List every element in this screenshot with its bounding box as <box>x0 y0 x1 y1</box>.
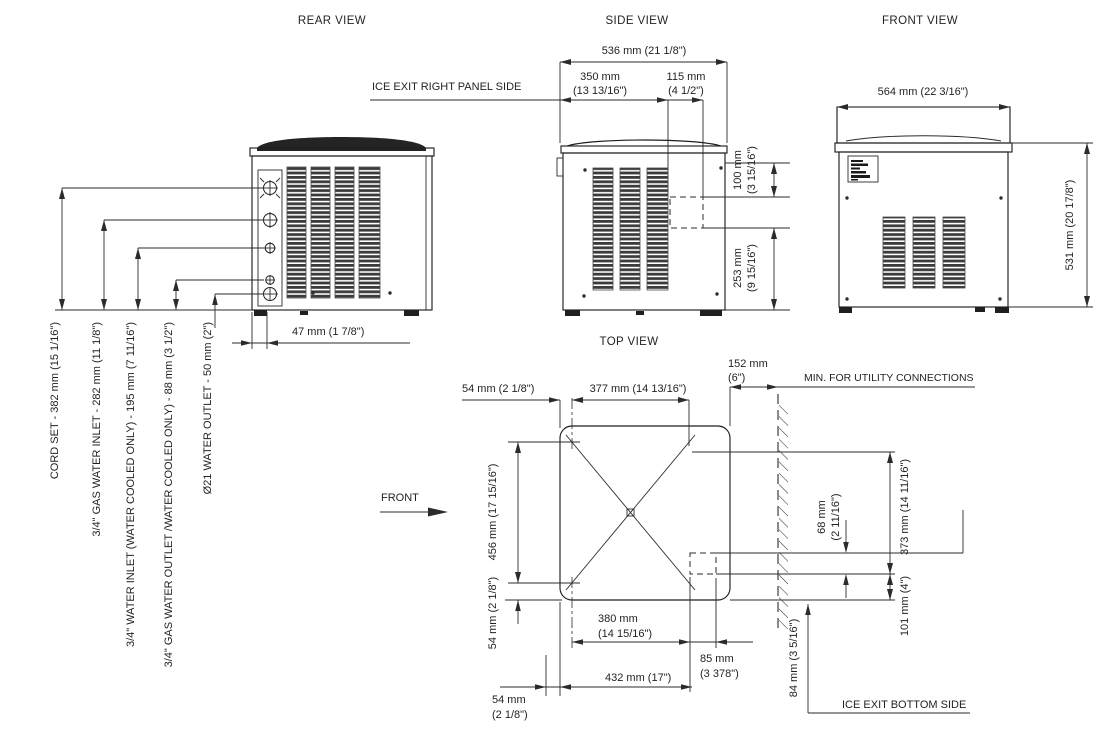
dim-350-label-l1: 350 mm <box>580 71 620 83</box>
dim-54-top-label: 54 mm (2 1/8") <box>462 383 534 395</box>
dim-377-label: 377 mm (14 13/16") <box>590 383 687 395</box>
dim-536-label: 536 mm (21 1/8") <box>602 45 687 57</box>
dim-101-label: 101 mm (4") <box>899 576 911 636</box>
rear-vent-grille <box>335 167 354 298</box>
front-machine <box>835 107 1012 313</box>
gas-water-outlet-fitting <box>265 275 275 285</box>
screw <box>311 291 314 294</box>
dim-350-label-l2: (13 13/16") <box>573 85 627 97</box>
foot <box>300 311 308 315</box>
foot <box>404 310 419 316</box>
front-lid-arc <box>846 136 1001 141</box>
foot <box>975 307 985 312</box>
dim-68-label-l2: (2 11/16") <box>830 493 842 540</box>
water-outlet-label: Ø21 WATER OUTLET - 50 mm (2") <box>202 322 214 494</box>
top-view-title: TOP VIEW <box>599 336 658 348</box>
dim-84-label: 84 mm (3 5/16") <box>788 619 800 698</box>
front-view: FRONT VIEW 564 mm (22 3/16") <box>835 15 1093 313</box>
foot <box>839 307 852 313</box>
screw <box>582 294 585 297</box>
spec-label <box>848 156 878 182</box>
front-lid <box>837 107 1010 143</box>
dim-68-label-l1: 68 mm <box>816 500 828 534</box>
dim-152-label-l2: (6") <box>728 372 745 384</box>
dim-100-label-l1: 100 mm <box>732 150 744 190</box>
dim-54-left-label: 54 mm (2 1/8") <box>487 577 499 649</box>
front-direction-label: FRONT <box>381 492 419 504</box>
top-ice-exit-opening <box>690 553 716 574</box>
utility-wall <box>778 394 788 632</box>
dim-531-label: 531 mm (20 17/8") <box>1064 180 1076 271</box>
screw <box>998 297 1001 300</box>
rear-machine <box>250 137 434 316</box>
dim-115-label-l1: 115 mm <box>667 71 706 83</box>
side-view-title: SIDE VIEW <box>605 15 668 27</box>
side-hinge <box>557 158 563 176</box>
dim-100-label-l2: (3 15/16") <box>746 146 758 194</box>
front-vent-grille <box>913 217 935 288</box>
cord-set-label: CORD SET - 382 mm (15 1/16") <box>49 322 61 479</box>
dim-373-label: 373 mm (14 11/16") <box>899 459 911 555</box>
side-body <box>563 153 725 310</box>
foot <box>565 310 580 316</box>
rear-view-title: REAR VIEW <box>298 15 366 27</box>
screw <box>719 166 722 169</box>
dim-253-label-l2: (9 15/16") <box>746 244 758 292</box>
dim-115-label-l2: (4 1/2") <box>668 85 704 97</box>
screw <box>845 196 848 199</box>
front-direction-arrow <box>380 508 448 517</box>
dim-380-label-l2: (14 15/16") <box>598 628 652 640</box>
top-left-dimension-lines <box>505 442 580 624</box>
foot <box>254 310 267 316</box>
foot <box>995 307 1009 313</box>
water-inlet-label: 3/4" WATER INLET (WATER COOLED ONLY) - 1… <box>125 322 137 647</box>
dim-54-bottom-label-l2: (2 1/8") <box>492 709 528 721</box>
ice-exit-right-panel-label: ICE EXIT RIGHT PANEL SIDE <box>372 81 521 93</box>
rear-view: REAR VIEW <box>49 15 434 667</box>
screw <box>845 297 848 300</box>
side-view: SIDE VIEW 536 mm (21 1/8") ICE EXIT RIGH… <box>370 15 790 316</box>
side-vent-grille <box>620 168 640 290</box>
gas-water-outlet-label: 3/4" GAS WATER OUTLET /WATER COOLED ONLY… <box>163 322 175 667</box>
dim-85-label-l1: 85 mm <box>700 653 734 665</box>
dim-253-label-l1: 253 mm <box>732 248 744 288</box>
dim-152-label-l1: 152 mm <box>728 358 768 370</box>
front-lid-rail <box>835 143 1012 152</box>
front-vent-grille <box>943 217 965 288</box>
side-ice-exit-opening <box>670 197 703 228</box>
dim-456-label: 456 mm (17 15/16") <box>487 464 499 561</box>
side-vent-grille <box>593 168 613 290</box>
rear-dimension-lines <box>55 188 410 349</box>
dim-432-label: 432 mm (17") <box>605 672 671 684</box>
screw <box>999 196 1002 199</box>
dim-47-label: 47 mm (1 7/8") <box>292 326 364 338</box>
rear-vent-grille <box>359 167 380 298</box>
dim-380-label-l1: 380 mm <box>598 613 638 625</box>
screw <box>388 291 391 294</box>
side-lid-rail <box>561 146 727 153</box>
rear-vent-grille <box>311 167 330 298</box>
gas-water-inlet-label: 3/4" GAS WATER INLET - 282 mm (11 1/8") <box>91 322 103 537</box>
technical-drawing: REAR VIEW <box>0 0 1103 738</box>
screw <box>715 292 718 295</box>
front-vent-grille <box>883 217 905 288</box>
dim-85-label-l2: (3 378") <box>700 668 739 680</box>
rear-vent-grille <box>287 167 306 298</box>
dim-564-label: 564 mm (22 3/16") <box>878 86 969 98</box>
side-lid-arc <box>567 140 721 146</box>
min-utility-label: MIN. FOR UTILITY CONNECTIONS <box>804 372 974 384</box>
gas-water-inlet-fitting <box>262 212 278 228</box>
top-view: TOP VIEW FRONT <box>380 336 975 721</box>
foot <box>636 311 644 315</box>
screw <box>583 168 586 171</box>
rear-lid-top <box>257 137 426 151</box>
side-machine <box>557 140 727 316</box>
dim-54-bottom-label-l1: 54 mm <box>492 694 526 706</box>
water-outlet-fitting <box>262 287 278 301</box>
foot <box>700 310 722 316</box>
ice-machine-dimension-drawing: REAR VIEW <box>0 0 1103 738</box>
ice-exit-bottom-label: ICE EXIT BOTTOM SIDE <box>842 699 966 711</box>
front-view-title: FRONT VIEW <box>882 15 958 27</box>
side-vent-grille <box>647 168 668 290</box>
water-inlet-fitting <box>264 242 276 254</box>
